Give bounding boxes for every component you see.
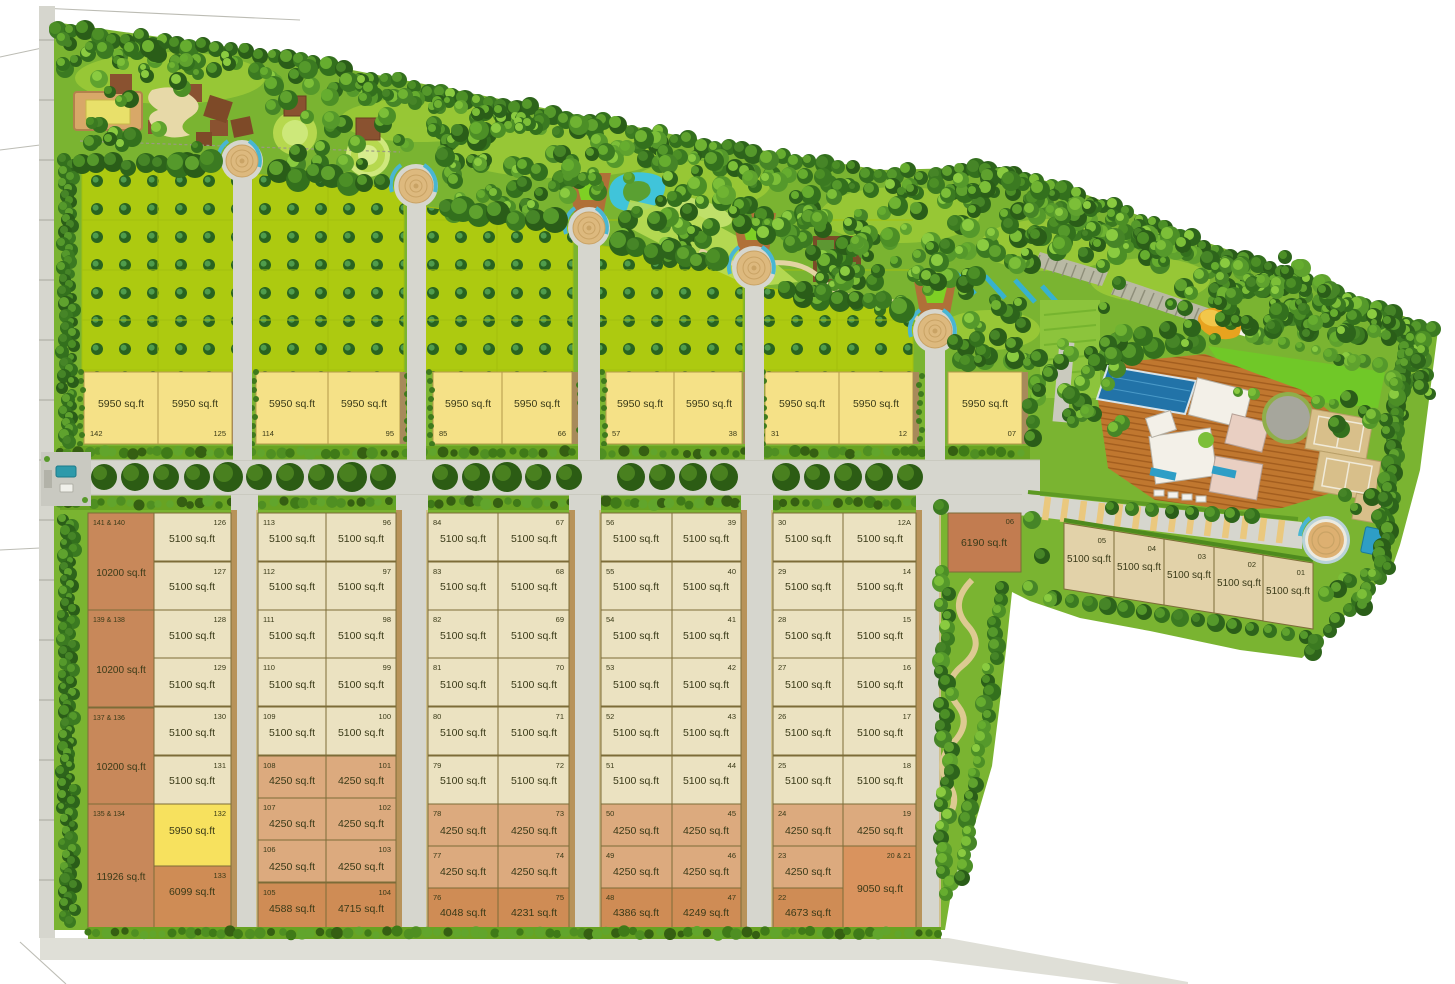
svg-text:06: 06	[1006, 517, 1014, 526]
svg-text:5100 sq.ft: 5100 sq.ft	[613, 533, 659, 545]
svg-text:5100 sq.ft: 5100 sq.ft	[169, 727, 215, 739]
svg-text:5100 sq.ft: 5100 sq.ft	[269, 679, 315, 691]
svg-text:107: 107	[263, 803, 276, 812]
svg-text:5100 sq.ft: 5100 sq.ft	[683, 630, 729, 642]
svg-text:4250 sq.ft: 4250 sq.ft	[269, 775, 315, 787]
svg-text:68: 68	[556, 567, 564, 576]
svg-text:49: 49	[606, 851, 614, 860]
svg-text:139 & 138: 139 & 138	[93, 617, 125, 624]
svg-text:5100 sq.ft: 5100 sq.ft	[857, 533, 903, 545]
svg-text:80: 80	[433, 712, 441, 721]
svg-text:5100 sq.ft: 5100 sq.ft	[613, 679, 659, 691]
svg-text:5950 sq.ft: 5950 sq.ft	[172, 398, 218, 410]
svg-text:4250 sq.ft: 4250 sq.ft	[440, 866, 486, 878]
svg-text:4250 sq.ft: 4250 sq.ft	[338, 775, 384, 787]
svg-text:4250 sq.ft: 4250 sq.ft	[269, 818, 315, 830]
svg-text:100: 100	[378, 712, 391, 721]
svg-text:4386 sq.ft: 4386 sq.ft	[613, 907, 659, 919]
svg-text:5100 sq.ft: 5100 sq.ft	[613, 775, 659, 787]
svg-text:104: 104	[378, 888, 391, 897]
svg-text:128: 128	[213, 615, 226, 624]
svg-text:30: 30	[778, 518, 786, 527]
svg-text:5100 sq.ft: 5100 sq.ft	[857, 679, 903, 691]
svg-text:41: 41	[728, 615, 736, 624]
svg-text:5100 sq.ft: 5100 sq.ft	[511, 775, 557, 787]
svg-text:5100 sq.ft: 5100 sq.ft	[511, 679, 557, 691]
svg-text:5950 sq.ft: 5950 sq.ft	[445, 398, 491, 410]
svg-text:01: 01	[1297, 568, 1305, 577]
svg-text:73: 73	[556, 809, 564, 818]
svg-text:5950 sq.ft: 5950 sq.ft	[98, 398, 144, 410]
svg-text:14: 14	[903, 567, 911, 576]
svg-text:5100 sq.ft: 5100 sq.ft	[511, 581, 557, 593]
svg-text:5100 sq.ft: 5100 sq.ft	[440, 727, 486, 739]
svg-text:111: 111	[263, 615, 274, 624]
svg-text:50: 50	[606, 809, 614, 818]
svg-text:17: 17	[903, 712, 911, 721]
svg-text:105: 105	[263, 888, 276, 897]
svg-text:4250 sq.ft: 4250 sq.ft	[857, 825, 903, 837]
svg-text:27: 27	[778, 663, 786, 672]
svg-text:67: 67	[556, 518, 564, 527]
svg-text:5100 sq.ft: 5100 sq.ft	[169, 679, 215, 691]
svg-text:5100 sq.ft: 5100 sq.ft	[169, 630, 215, 642]
svg-text:78: 78	[433, 809, 441, 818]
svg-text:4250 sq.ft: 4250 sq.ft	[785, 866, 831, 878]
svg-text:103: 103	[378, 845, 391, 854]
svg-text:5100 sq.ft: 5100 sq.ft	[785, 775, 831, 787]
svg-text:5100 sq.ft: 5100 sq.ft	[683, 581, 729, 593]
svg-text:5100 sq.ft: 5100 sq.ft	[440, 679, 486, 691]
svg-text:5950 sq.ft: 5950 sq.ft	[269, 398, 315, 410]
svg-text:5100 sq.ft: 5100 sq.ft	[169, 533, 215, 545]
svg-text:5950 sq.ft: 5950 sq.ft	[514, 398, 560, 410]
svg-text:4250 sq.ft: 4250 sq.ft	[683, 866, 729, 878]
svg-text:112: 112	[263, 567, 275, 576]
svg-text:113: 113	[263, 518, 275, 527]
svg-text:85: 85	[439, 429, 447, 438]
svg-text:5100 sq.ft: 5100 sq.ft	[269, 630, 315, 642]
svg-text:47: 47	[728, 893, 736, 902]
svg-text:131: 131	[213, 761, 226, 770]
svg-text:11926 sq.ft: 11926 sq.ft	[97, 872, 146, 883]
svg-text:5100 sq.ft: 5100 sq.ft	[613, 727, 659, 739]
svg-text:75: 75	[556, 893, 564, 902]
svg-text:84: 84	[433, 518, 441, 527]
svg-text:45: 45	[728, 809, 736, 818]
svg-text:5100 sq.ft: 5100 sq.ft	[785, 679, 831, 691]
svg-text:54: 54	[606, 615, 614, 624]
svg-text:02: 02	[1248, 560, 1256, 569]
svg-text:5100 sq.ft: 5100 sq.ft	[613, 630, 659, 642]
svg-text:29: 29	[778, 567, 786, 576]
svg-text:5100 sq.ft: 5100 sq.ft	[269, 533, 315, 545]
svg-text:5100 sq.ft: 5100 sq.ft	[785, 727, 831, 739]
svg-text:5100 sq.ft: 5100 sq.ft	[683, 775, 729, 787]
svg-text:4250 sq.ft: 4250 sq.ft	[338, 861, 384, 873]
svg-text:5100 sq.ft: 5100 sq.ft	[613, 581, 659, 593]
svg-text:129: 129	[213, 663, 226, 672]
svg-text:70: 70	[556, 663, 564, 672]
svg-text:5950 sq.ft: 5950 sq.ft	[686, 398, 732, 410]
svg-text:4249 sq.ft: 4249 sq.ft	[683, 907, 729, 919]
svg-text:10200 sq.ft: 10200 sq.ft	[96, 568, 146, 579]
svg-text:5100 sq.ft: 5100 sq.ft	[785, 581, 831, 593]
svg-text:102: 102	[378, 803, 391, 812]
svg-text:130: 130	[213, 712, 226, 721]
svg-text:5100 sq.ft: 5100 sq.ft	[1117, 562, 1161, 573]
svg-text:53: 53	[606, 663, 614, 672]
svg-text:4250 sq.ft: 4250 sq.ft	[785, 825, 831, 837]
svg-text:5100 sq.ft: 5100 sq.ft	[1217, 578, 1261, 589]
svg-text:6099 sq.ft: 6099 sq.ft	[169, 886, 215, 898]
svg-text:5100 sq.ft: 5100 sq.ft	[511, 727, 557, 739]
svg-text:10200 sq.ft: 10200 sq.ft	[96, 665, 146, 676]
svg-text:97: 97	[383, 567, 391, 576]
svg-text:4250 sq.ft: 4250 sq.ft	[683, 825, 729, 837]
svg-text:9050 sq.ft: 9050 sq.ft	[857, 883, 903, 895]
svg-text:114: 114	[262, 429, 274, 438]
svg-text:127: 127	[213, 567, 226, 576]
svg-text:5100 sq.ft: 5100 sq.ft	[169, 775, 215, 787]
svg-text:109: 109	[263, 712, 276, 721]
svg-text:4588 sq.ft: 4588 sq.ft	[269, 903, 315, 915]
svg-text:48: 48	[606, 893, 614, 902]
svg-text:46: 46	[728, 851, 736, 860]
svg-text:5100 sq.ft: 5100 sq.ft	[1167, 570, 1211, 581]
svg-text:4250 sq.ft: 4250 sq.ft	[338, 818, 384, 830]
svg-text:5100 sq.ft: 5100 sq.ft	[511, 533, 557, 545]
svg-text:24: 24	[778, 809, 786, 818]
svg-text:55: 55	[606, 567, 614, 576]
svg-text:72: 72	[556, 761, 564, 770]
svg-text:5100 sq.ft: 5100 sq.ft	[440, 533, 486, 545]
svg-text:22: 22	[778, 893, 786, 902]
svg-text:05: 05	[1098, 536, 1106, 545]
svg-text:5100 sq.ft: 5100 sq.ft	[683, 533, 729, 545]
svg-text:4250 sq.ft: 4250 sq.ft	[440, 825, 486, 837]
svg-text:5100 sq.ft: 5100 sq.ft	[169, 581, 215, 593]
svg-text:126: 126	[213, 518, 226, 527]
svg-text:12: 12	[899, 429, 907, 438]
svg-text:132: 132	[213, 809, 226, 818]
svg-text:81: 81	[433, 663, 441, 672]
svg-text:4250 sq.ft: 4250 sq.ft	[613, 825, 659, 837]
svg-text:71: 71	[556, 712, 564, 721]
svg-text:5950 sq.ft: 5950 sq.ft	[617, 398, 663, 410]
svg-text:4715 sq.ft: 4715 sq.ft	[338, 903, 384, 915]
svg-text:4231 sq.ft: 4231 sq.ft	[511, 907, 557, 919]
svg-text:39: 39	[728, 518, 736, 527]
svg-text:4673 sq.ft: 4673 sq.ft	[785, 907, 831, 919]
svg-text:77: 77	[433, 851, 441, 860]
svg-text:135 & 134: 135 & 134	[93, 811, 125, 818]
svg-text:5100 sq.ft: 5100 sq.ft	[857, 630, 903, 642]
svg-text:83: 83	[433, 567, 441, 576]
svg-text:69: 69	[556, 615, 564, 624]
svg-text:03: 03	[1198, 552, 1206, 561]
svg-text:5100 sq.ft: 5100 sq.ft	[683, 727, 729, 739]
svg-text:10200 sq.ft: 10200 sq.ft	[96, 762, 146, 773]
svg-text:5100 sq.ft: 5100 sq.ft	[511, 630, 557, 642]
svg-text:5100 sq.ft: 5100 sq.ft	[785, 630, 831, 642]
svg-text:5100 sq.ft: 5100 sq.ft	[857, 775, 903, 787]
svg-text:04: 04	[1148, 544, 1156, 553]
svg-text:40: 40	[728, 567, 736, 576]
svg-text:38: 38	[729, 429, 737, 438]
svg-text:5100 sq.ft: 5100 sq.ft	[440, 775, 486, 787]
svg-text:137 & 136: 137 & 136	[93, 715, 125, 722]
svg-text:5100 sq.ft: 5100 sq.ft	[857, 581, 903, 593]
svg-text:07: 07	[1008, 429, 1016, 438]
svg-text:66: 66	[558, 429, 566, 438]
svg-text:20 & 21: 20 & 21	[887, 853, 911, 860]
svg-text:57: 57	[612, 429, 620, 438]
svg-text:15: 15	[903, 615, 911, 624]
svg-text:5950 sq.ft: 5950 sq.ft	[962, 398, 1008, 410]
svg-text:4250 sq.ft: 4250 sq.ft	[511, 825, 557, 837]
svg-text:26: 26	[778, 712, 786, 721]
svg-text:12A: 12A	[898, 518, 911, 527]
svg-text:5100 sq.ft: 5100 sq.ft	[338, 679, 384, 691]
svg-text:101: 101	[378, 761, 391, 770]
svg-text:74: 74	[556, 851, 564, 860]
svg-text:133: 133	[213, 871, 226, 880]
svg-text:28: 28	[778, 615, 786, 624]
svg-text:18: 18	[903, 761, 911, 770]
svg-text:5100 sq.ft: 5100 sq.ft	[440, 581, 486, 593]
svg-text:19: 19	[903, 809, 911, 818]
svg-text:56: 56	[606, 518, 614, 527]
svg-text:125: 125	[213, 429, 226, 438]
svg-text:99: 99	[383, 663, 391, 672]
svg-text:23: 23	[778, 851, 786, 860]
svg-text:5100 sq.ft: 5100 sq.ft	[338, 727, 384, 739]
svg-text:4250 sq.ft: 4250 sq.ft	[269, 861, 315, 873]
svg-text:42: 42	[728, 663, 736, 672]
svg-text:5950 sq.ft: 5950 sq.ft	[853, 398, 899, 410]
svg-text:95: 95	[386, 429, 394, 438]
svg-text:43: 43	[728, 712, 736, 721]
svg-text:5100 sq.ft: 5100 sq.ft	[269, 581, 315, 593]
svg-text:44: 44	[728, 761, 736, 770]
svg-text:5100 sq.ft: 5100 sq.ft	[440, 630, 486, 642]
svg-text:4250 sq.ft: 4250 sq.ft	[511, 866, 557, 878]
svg-text:82: 82	[433, 615, 441, 624]
svg-text:5100 sq.ft: 5100 sq.ft	[785, 533, 831, 545]
svg-text:5100 sq.ft: 5100 sq.ft	[683, 679, 729, 691]
svg-text:4048 sq.ft: 4048 sq.ft	[440, 907, 486, 919]
svg-text:16: 16	[903, 663, 911, 672]
svg-text:110: 110	[263, 663, 275, 672]
svg-text:108: 108	[263, 761, 276, 770]
svg-text:5100 sq.ft: 5100 sq.ft	[857, 727, 903, 739]
svg-text:141 & 140: 141 & 140	[93, 520, 125, 527]
svg-text:4250 sq.ft: 4250 sq.ft	[613, 866, 659, 878]
svg-text:79: 79	[433, 761, 441, 770]
svg-text:76: 76	[433, 893, 441, 902]
svg-text:31: 31	[771, 429, 779, 438]
svg-text:5100 sq.ft: 5100 sq.ft	[1067, 554, 1111, 565]
svg-text:5100 sq.ft: 5100 sq.ft	[1266, 586, 1310, 597]
svg-text:5100 sq.ft: 5100 sq.ft	[338, 630, 384, 642]
svg-text:52: 52	[606, 712, 614, 721]
svg-text:96: 96	[383, 518, 391, 527]
svg-text:6190 sq.ft: 6190 sq.ft	[961, 537, 1007, 549]
svg-text:5100 sq.ft: 5100 sq.ft	[269, 727, 315, 739]
svg-text:5100 sq.ft: 5100 sq.ft	[338, 581, 384, 593]
svg-text:106: 106	[263, 845, 276, 854]
svg-text:5100 sq.ft: 5100 sq.ft	[338, 533, 384, 545]
svg-text:5950 sq.ft: 5950 sq.ft	[779, 398, 825, 410]
svg-text:5950 sq.ft: 5950 sq.ft	[341, 398, 387, 410]
svg-text:51: 51	[606, 761, 614, 770]
svg-text:25: 25	[778, 761, 786, 770]
svg-text:142: 142	[90, 429, 103, 438]
svg-text:5950 sq.ft: 5950 sq.ft	[169, 825, 215, 837]
svg-text:98: 98	[383, 615, 391, 624]
